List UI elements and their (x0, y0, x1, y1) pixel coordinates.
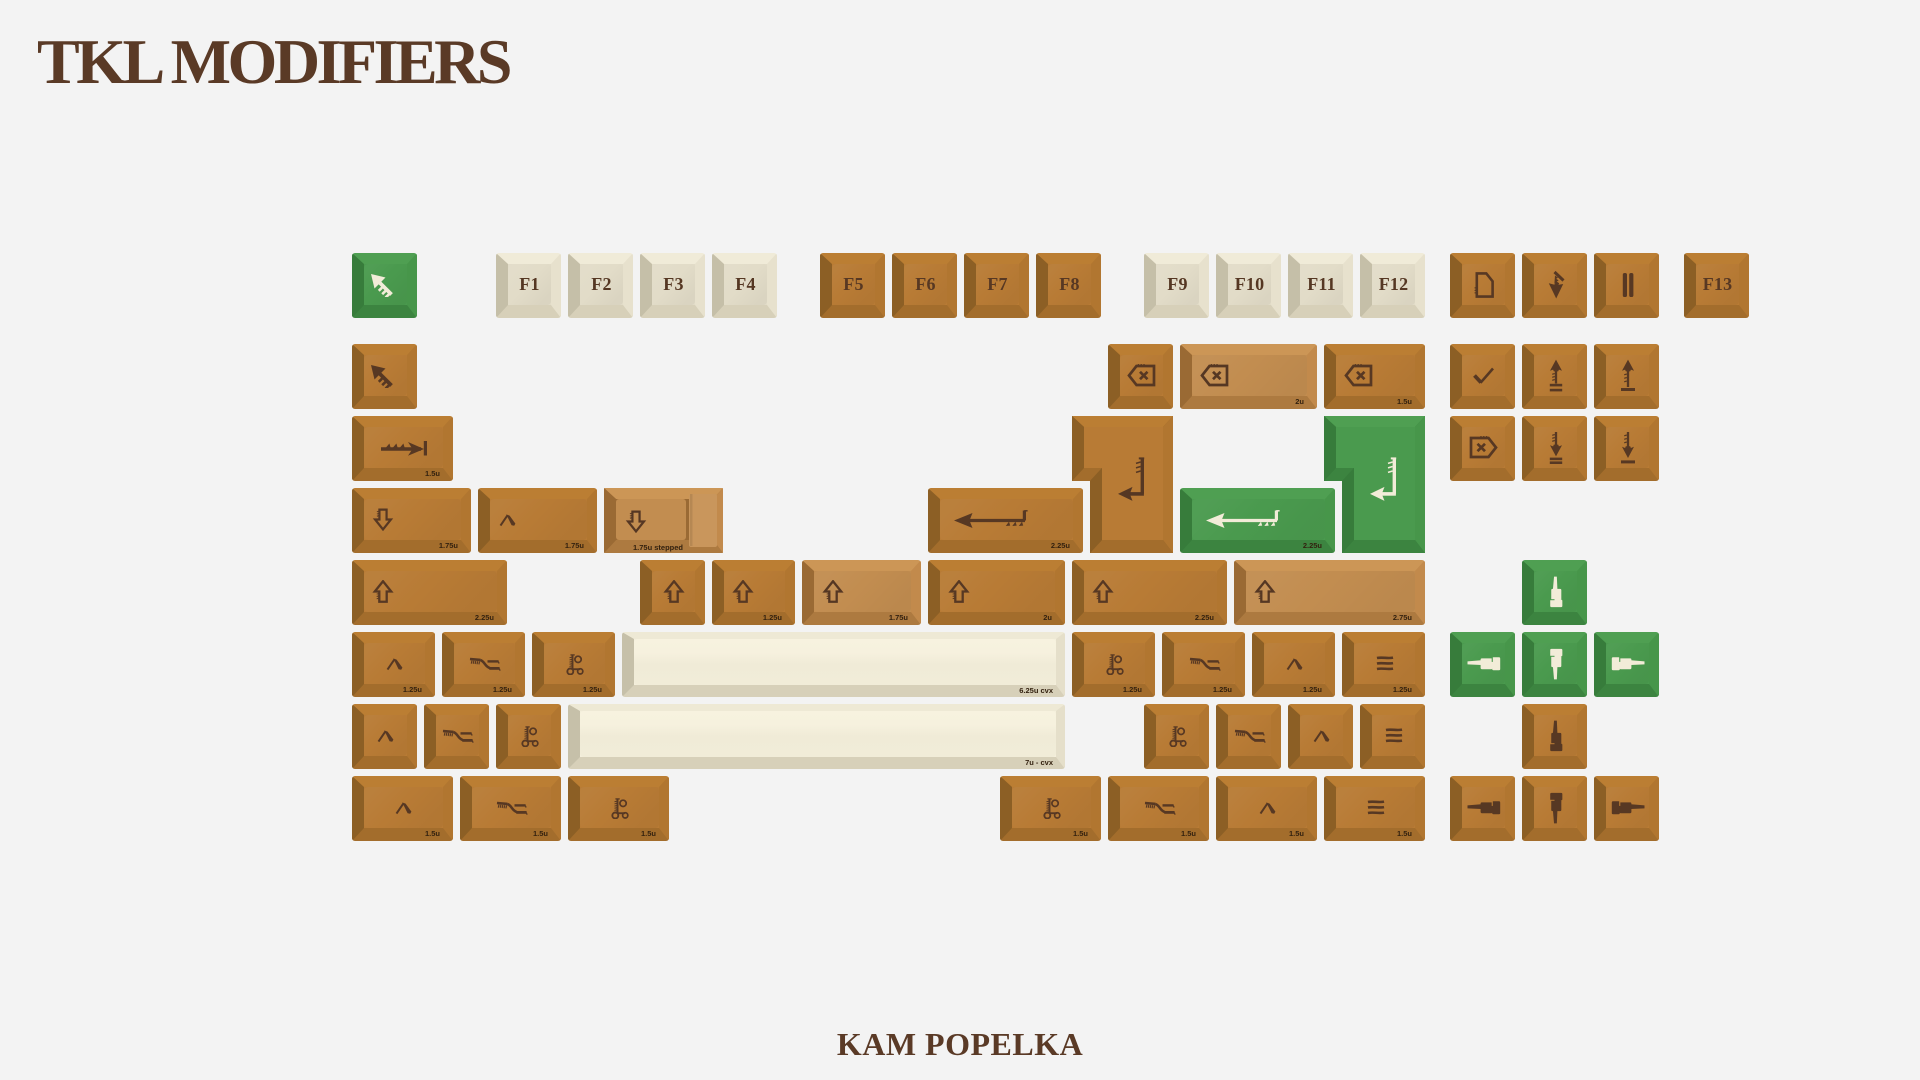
svg-text:1.75u stepped: 1.75u stepped (633, 543, 683, 552)
